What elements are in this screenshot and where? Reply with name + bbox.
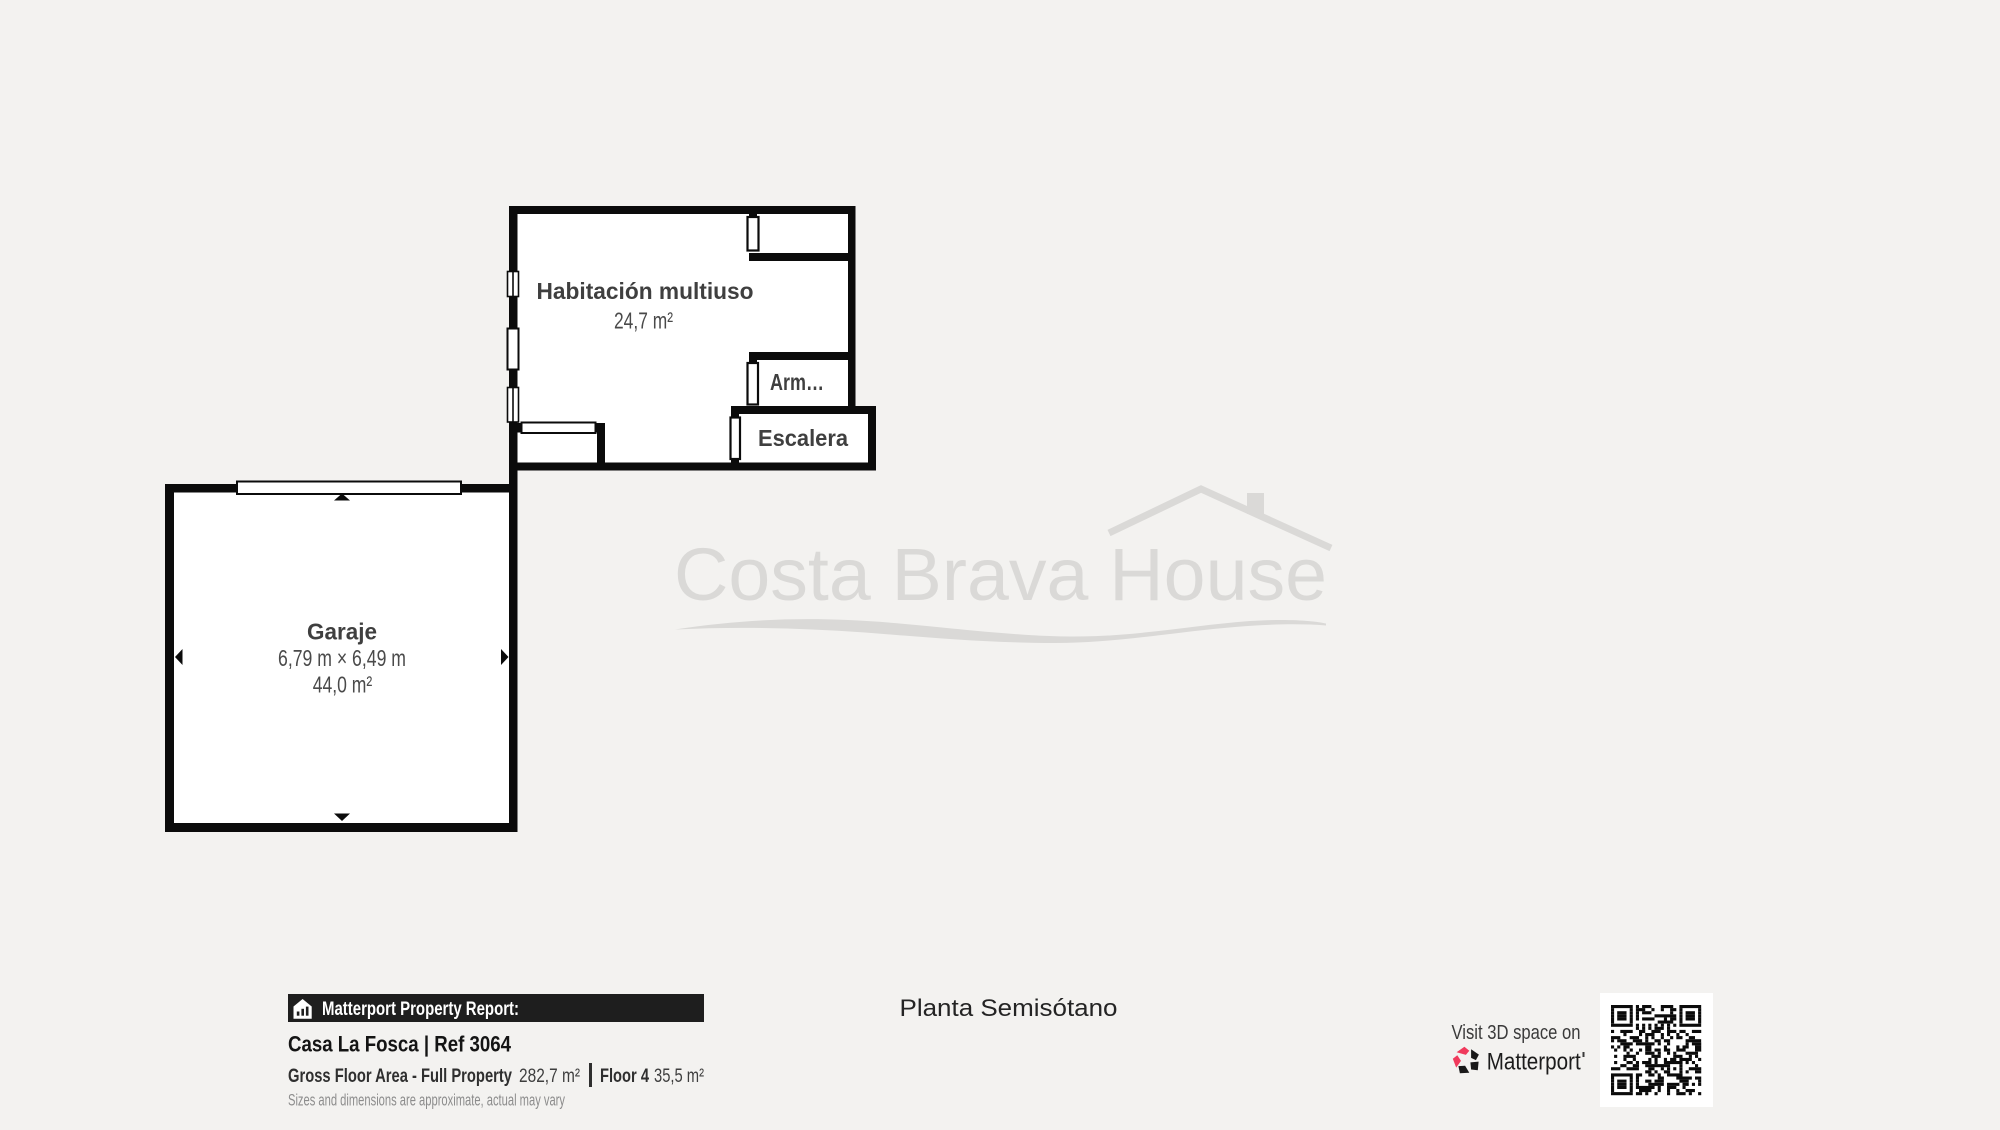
svg-text:Gross Floor Area - Full Proper: Gross Floor Area - Full Property (288, 1065, 512, 1087)
svg-text:Casa La Fosca | Ref 3064: Casa La Fosca | Ref 3064 (288, 1032, 512, 1057)
svg-text:Garaje: Garaje (307, 619, 377, 645)
svg-text:44,0 m²: 44,0 m² (313, 672, 373, 698)
svg-text:Escalera: Escalera (758, 425, 848, 451)
svg-text:6,79 m × 6,49 m: 6,79 m × 6,49 m (278, 645, 406, 671)
svg-text:Sizes and dimensions are appro: Sizes and dimensions are approximate, ac… (288, 1091, 565, 1110)
svg-text:Matterport: Matterport (1487, 1049, 1581, 1076)
svg-text:Matterport Property Report:: Matterport Property Report: (322, 999, 519, 1020)
svg-text:Planta Semisótano: Planta Semisótano (900, 995, 1118, 1022)
svg-text:Floor 4: Floor 4 (600, 1065, 649, 1087)
svg-text:Arm…: Arm… (770, 369, 824, 395)
svg-text:282,7 m²: 282,7 m² (519, 1065, 580, 1087)
svg-text:Visit 3D space on: Visit 3D space on (1452, 1021, 1581, 1044)
svg-text:Costa Brava House: Costa Brava House (674, 533, 1327, 616)
svg-text:Habitación multiuso: Habitación multiuso (537, 278, 754, 304)
svg-text:24,7 m²: 24,7 m² (614, 308, 673, 334)
svg-text:35,5 m²: 35,5 m² (654, 1065, 704, 1087)
